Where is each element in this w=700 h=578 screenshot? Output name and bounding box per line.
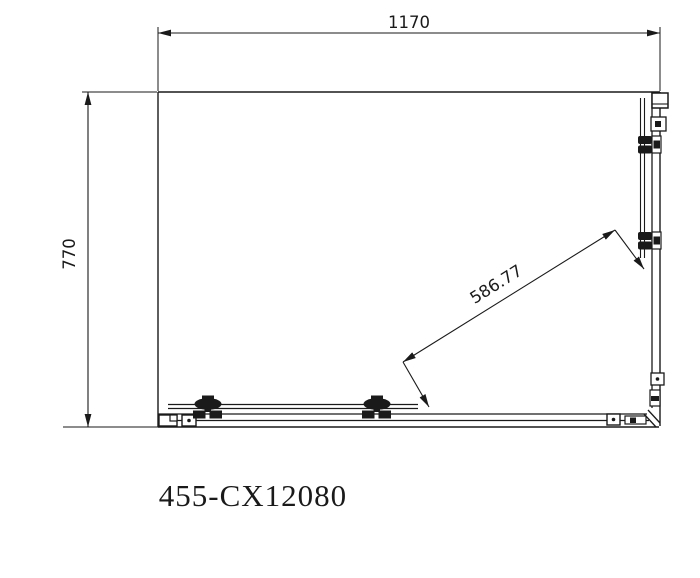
frame-bracket-block <box>651 396 659 401</box>
enclosure-frame <box>158 92 660 427</box>
fixing-block-screw-dot <box>612 418 616 422</box>
fixing-block-screw-dot <box>656 377 660 381</box>
mount-block-screw <box>655 121 661 127</box>
wall-bracket-icon <box>652 93 668 108</box>
shower-enclosure-technical-drawing: 1170 770 586.77 455-CX12080 <box>0 0 700 578</box>
product-code-label: 455-CX12080 <box>159 478 347 513</box>
rail-bracket-block <box>630 418 636 424</box>
dimension-diagonal: 586.77 <box>403 230 644 407</box>
dimension-depth: 770 <box>60 92 159 427</box>
fixing-block-screw-dot <box>187 419 191 423</box>
dimension-line-diagonal <box>403 230 615 362</box>
roller-foot-right <box>379 411 392 419</box>
hinge-knuckle-top <box>638 232 652 240</box>
hinge-pin <box>654 237 661 245</box>
roller-wheel-icon <box>362 396 391 419</box>
hinge-pin <box>654 141 661 149</box>
hinge-icon <box>638 232 661 250</box>
drawing-svg: 1170 770 586.77 455-CX12080 <box>0 0 700 578</box>
roller-foot-left <box>362 411 375 419</box>
dimension-width: 1170 <box>158 13 660 91</box>
roller-axle <box>374 407 381 412</box>
roller-wheel-icon <box>193 396 222 419</box>
dimension-depth-label: 770 <box>60 238 79 270</box>
hinge-knuckle-top <box>638 136 652 144</box>
roller-foot-right <box>210 411 223 419</box>
hinge-icon <box>638 136 661 154</box>
roller-foot-left <box>193 411 206 419</box>
right-frame-hardware <box>638 93 668 406</box>
dimension-width-label: 1170 <box>388 13 430 32</box>
roller-axle <box>205 407 212 412</box>
dimension-diagonal-label: 586.77 <box>467 261 526 308</box>
diagonal-leader-to-panel-end <box>403 362 429 407</box>
end-bracket-notch <box>170 415 177 421</box>
hinge-knuckle-bottom <box>638 146 652 154</box>
bottom-rail-hardware <box>159 396 646 427</box>
hinge-knuckle-bottom <box>638 242 652 250</box>
